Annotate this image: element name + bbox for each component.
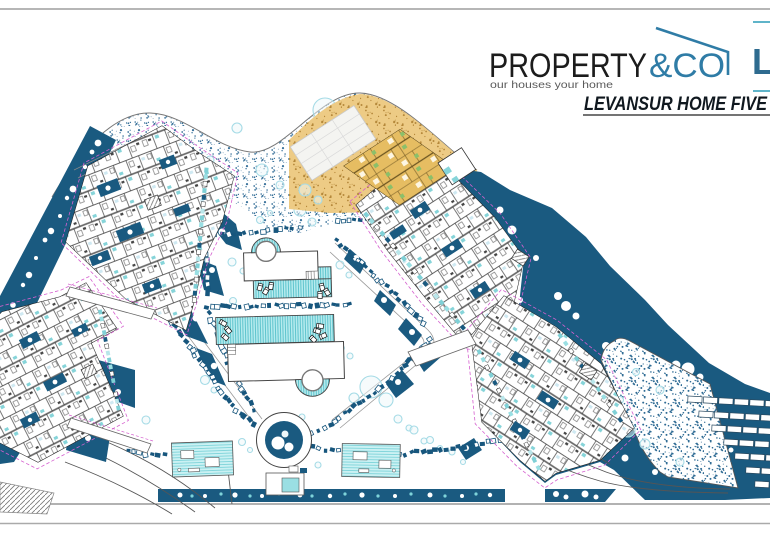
svg-text:our houses your home: our houses your home — [490, 79, 613, 91]
svg-text:LEVANSUR HOME FIVE: LEVANSUR HOME FIVE — [584, 94, 768, 115]
svg-text:L: L — [752, 41, 770, 82]
svg-text:&CO: &CO — [649, 47, 725, 85]
